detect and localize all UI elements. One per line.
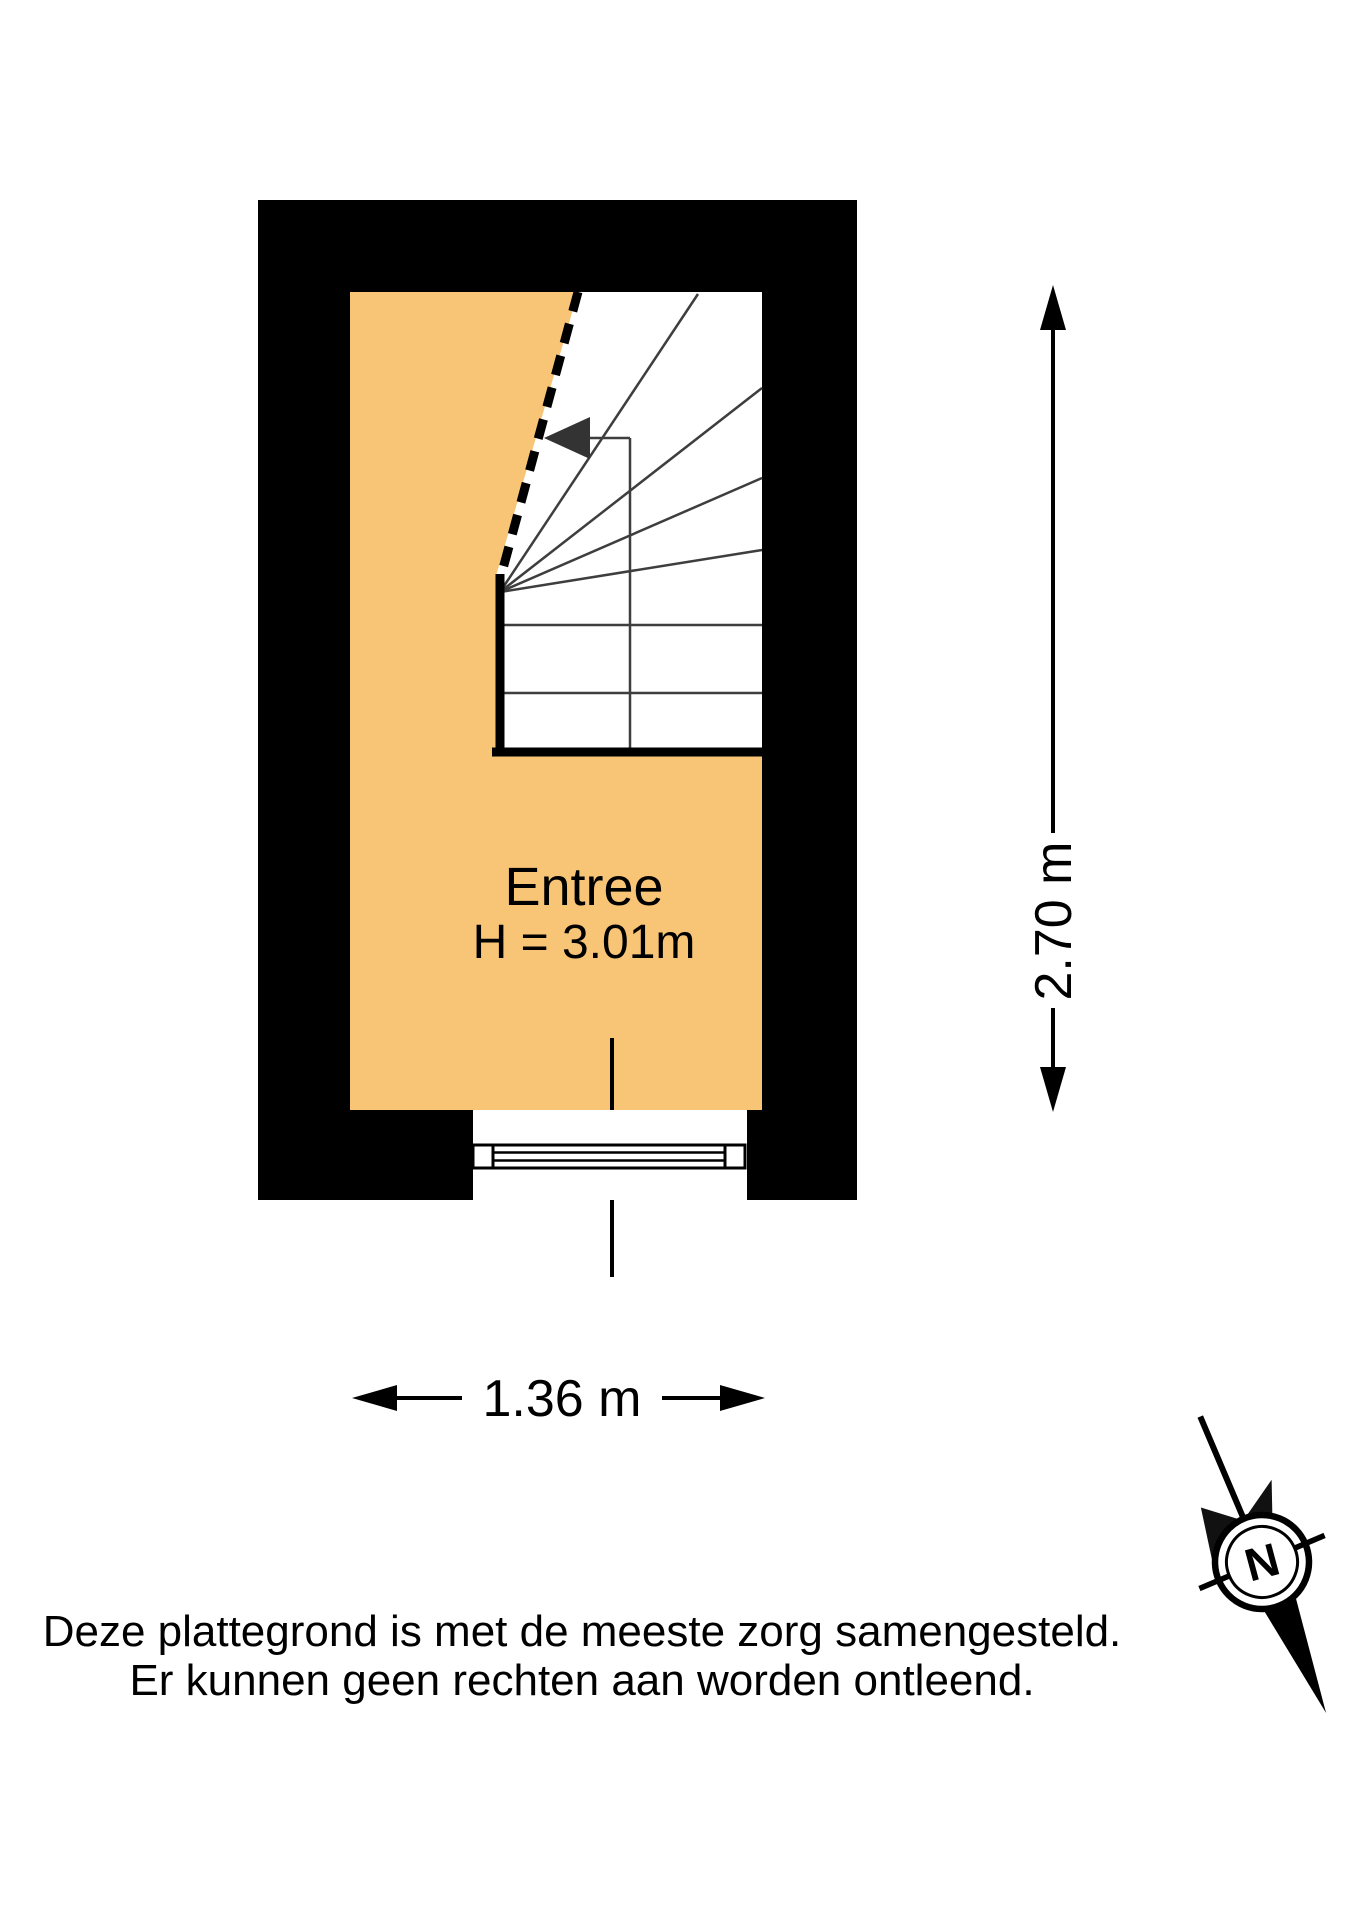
disclaimer-line-1: Deze plattegrond is met de meeste zorg s…	[43, 1607, 1122, 1656]
disclaimer-text: Deze plattegrond is met de meeste zorg s…	[43, 1607, 1122, 1705]
room-name-label: Entree	[504, 857, 663, 917]
arrow-up-icon	[1040, 285, 1066, 330]
floor-plan: Entree H = 3.01m 2.70 m 1.36 m N Deze pl…	[0, 0, 1358, 1920]
dimension-vertical: 2.70 m	[1025, 285, 1083, 1112]
north-compass-icon: N	[1138, 1390, 1358, 1740]
compass-south-needle	[1261, 1592, 1343, 1720]
arrow-left-icon	[352, 1385, 397, 1411]
width-dimension-label: 1.36 m	[483, 1370, 642, 1428]
compass-north-needle-line	[1200, 1417, 1245, 1522]
arrow-right-icon	[720, 1385, 765, 1411]
room-height-label: H = 3.01m	[473, 916, 696, 969]
dimension-horizontal: 1.36 m	[352, 1370, 765, 1428]
height-dimension-label: 2.70 m	[1025, 842, 1083, 1001]
arrow-down-icon	[1040, 1067, 1066, 1112]
disclaimer-line-2: Er kunnen geen rechten aan worden ontlee…	[129, 1656, 1034, 1705]
threshold-frame	[473, 1145, 745, 1168]
door-threshold	[473, 1145, 745, 1168]
